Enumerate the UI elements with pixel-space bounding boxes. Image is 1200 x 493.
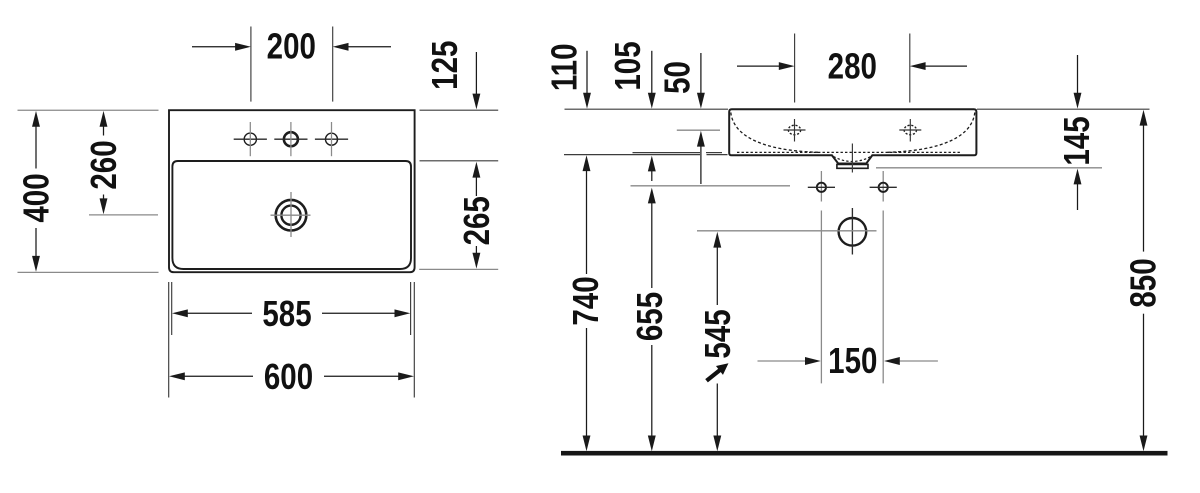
svg-text:150: 150 <box>828 340 877 380</box>
svg-text:50: 50 <box>657 61 697 94</box>
svg-text:585: 585 <box>262 293 311 333</box>
svg-text:850: 850 <box>1123 258 1163 307</box>
svg-text:400: 400 <box>16 173 56 222</box>
svg-text:545: 545 <box>697 309 737 358</box>
svg-text:655: 655 <box>629 292 669 341</box>
svg-text:145: 145 <box>1056 116 1096 165</box>
svg-text:600: 600 <box>264 356 313 396</box>
svg-text:265: 265 <box>456 196 496 245</box>
svg-text:125: 125 <box>424 41 464 90</box>
svg-text:740: 740 <box>565 276 605 325</box>
svg-text:200: 200 <box>267 25 316 65</box>
svg-text:105: 105 <box>607 41 647 90</box>
svg-text:280: 280 <box>828 46 877 86</box>
svg-text:110: 110 <box>544 43 584 91</box>
svg-text:260: 260 <box>83 140 123 189</box>
